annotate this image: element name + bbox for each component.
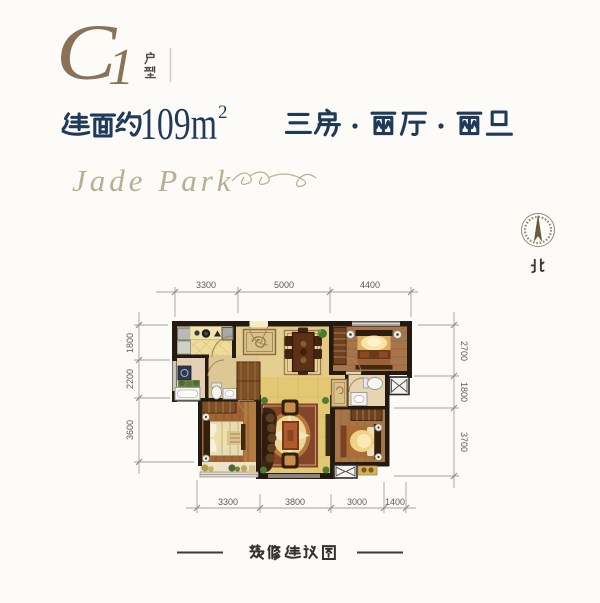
svg-text:3000: 3000 bbox=[347, 497, 367, 507]
svg-text:2200: 2200 bbox=[125, 369, 135, 389]
svg-text:5000: 5000 bbox=[274, 280, 294, 290]
svg-text:2: 2 bbox=[218, 102, 228, 123]
svg-text:1: 1 bbox=[108, 39, 134, 96]
svg-text:3300: 3300 bbox=[196, 280, 216, 290]
svg-text:2700: 2700 bbox=[459, 341, 469, 361]
svg-text:3300: 3300 bbox=[218, 497, 238, 507]
svg-text:4400: 4400 bbox=[360, 280, 380, 290]
svg-text:3600: 3600 bbox=[125, 420, 135, 440]
svg-text:1800: 1800 bbox=[459, 382, 469, 402]
svg-text:3700: 3700 bbox=[459, 432, 469, 452]
svg-text:109m: 109m bbox=[140, 98, 217, 149]
svg-text:3800: 3800 bbox=[285, 497, 305, 507]
svg-text:1400: 1400 bbox=[385, 497, 405, 507]
svg-text:Jade Park: Jade Park bbox=[72, 163, 235, 198]
svg-text:1800: 1800 bbox=[125, 333, 135, 353]
